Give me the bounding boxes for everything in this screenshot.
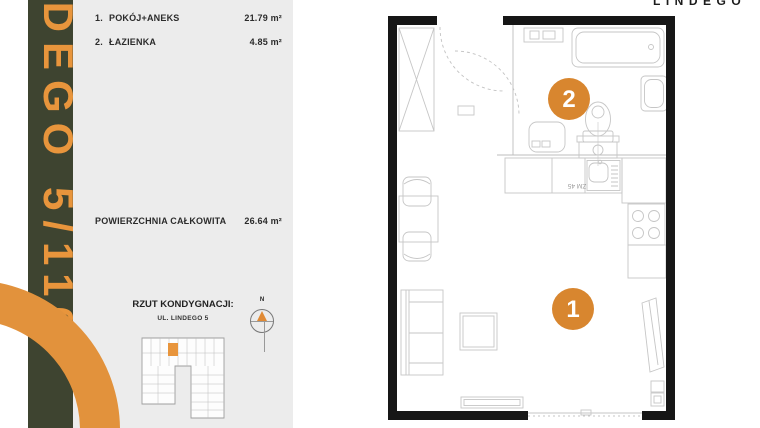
room-badge-number: 1 (566, 296, 579, 323)
kitchen-sink (587, 160, 620, 190)
total-area-label: POWIERZCHNIA CAŁKOWITA (95, 216, 226, 226)
coffee-table (460, 313, 497, 350)
room-area: 21.79 m² (244, 13, 282, 23)
room-name: ŁAZIENKA (109, 37, 156, 47)
door-leaf (458, 106, 474, 115)
side-unit (651, 381, 664, 406)
floor-section-subtitle: UL. LINDEGO 5 (113, 315, 253, 322)
room-area: 4.85 m² (250, 37, 282, 47)
floor-plan-page: LINDEGO 5/110 1. POKÓJ+ANEKS 21.79 m² 2.… (0, 0, 760, 428)
sofa (401, 290, 443, 375)
compass-north-arrow-icon (257, 311, 267, 321)
floor-section-title: RZUT KONDYGNACJI: (113, 299, 253, 310)
exterior-walls (388, 16, 675, 420)
room-badge-number: 2 (562, 86, 575, 113)
balcony-window (528, 410, 642, 416)
compass: N (249, 297, 275, 345)
counter-lower (628, 245, 666, 278)
room-index: 1. (95, 13, 109, 23)
room-list-row: 2. ŁAZIENKA 4.85 m² (95, 37, 282, 47)
building-floor-plan (140, 336, 228, 420)
room-index: 2. (95, 37, 109, 47)
dining-table (399, 196, 438, 242)
room-badge-2: 2 (548, 78, 590, 120)
compass-dial-icon (250, 309, 274, 333)
hall-cabinet (524, 28, 563, 42)
stove (628, 204, 665, 245)
compass-needle-line (264, 318, 265, 352)
kitchen-counter (505, 158, 666, 203)
unit-highlight (168, 343, 178, 356)
dishwasher-label: ZM 45 (567, 182, 586, 189)
bathtub (572, 28, 664, 67)
compass-north-label: N (249, 297, 275, 305)
bathroom-door-arc (455, 51, 519, 115)
total-area-row: POWIERZCHNIA CAŁKOWITA 26.64 m² (95, 216, 282, 226)
room-list-row: 1. POKÓJ+ANEKS 21.79 m² (95, 13, 282, 23)
bathroom-sink (641, 76, 667, 111)
wardrobe (399, 28, 434, 131)
apartment-plan: ZM 45 2 1 (375, 0, 760, 428)
tall-wardrobe (642, 298, 664, 372)
entrance-door-arc (440, 27, 504, 91)
tv-cabinet (461, 397, 523, 408)
room-name: POKÓJ+ANEKS (109, 13, 179, 23)
total-area-value: 26.64 m² (244, 216, 282, 226)
brand-logo: LINDEGO (653, 0, 746, 7)
info-panel: 1. POKÓJ+ANEKS 21.79 m² 2. ŁAZIENKA 4.85… (73, 0, 293, 428)
chair (403, 232, 431, 261)
chair (403, 177, 431, 206)
unit-id-vertical-title: LINDEGO 5/110 (34, 0, 73, 340)
fridge (529, 122, 565, 152)
room-badge-1: 1 (552, 288, 594, 330)
building-outline (142, 338, 224, 418)
